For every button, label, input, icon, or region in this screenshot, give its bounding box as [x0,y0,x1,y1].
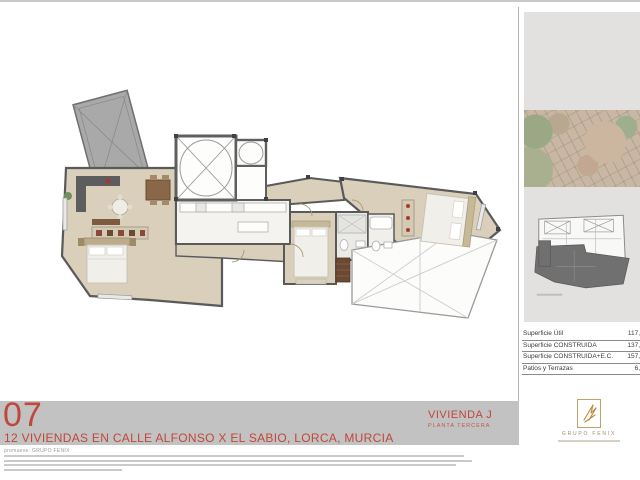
area-label: Superficie CONSTRUIDA [523,341,597,352]
area-label: Patios y Terrazas [523,364,573,375]
phoenix-bird-icon [578,400,600,427]
area-value: 157, [627,352,640,363]
promoter-line: promueve: GRUPO FENIX [4,448,70,454]
developer-tagline [558,440,620,442]
fine-print-line [4,460,472,462]
area-label: Superficie Útil [523,329,563,340]
area-value: 117, [628,329,640,340]
bed-left [78,238,136,283]
area-value: 6, [635,364,640,375]
unit-label: VIVIENDA J [428,409,492,421]
dining-table [146,180,170,200]
fine-print-line [4,455,464,457]
table-row: Superficie CONSTRUIDA 137, [522,341,640,353]
project-title: 12 VIVIENDAS EN CALLE ALFONSO X EL SABIO… [4,431,394,445]
building-key-plan [527,206,635,302]
fine-print-line [4,469,122,471]
plan-sheet: Superficie Útil 117, Superficie CONSTRUI… [0,0,640,480]
cooktop [106,179,111,184]
round-table [112,199,128,215]
kitchen [176,200,290,244]
table-row: Patios y Terrazas 6, [522,364,640,376]
keyplan-caption [537,294,563,296]
sheet-number: 07 [3,398,43,432]
bed-center [292,221,330,284]
developer-logo [577,399,601,428]
fine-print-line [4,464,456,466]
location-aerial-map [524,110,640,187]
table-row: Superficie Útil 117, [522,329,640,341]
patio [176,136,266,200]
table-row: Superficie CONSTRUIDA+E.C. 157, [522,352,640,364]
area-value: 137, [627,341,640,352]
developer-name: GRUPO FENIX [543,431,635,437]
areas-table: Superficie Útil 117, Superficie CONSTRUI… [522,329,640,375]
sideboard [92,219,120,225]
floor-label: PLANTA TERCERA [428,423,490,429]
bed-right [421,191,476,247]
area-label: Superficie CONSTRUIDA+E.C. [523,352,613,363]
